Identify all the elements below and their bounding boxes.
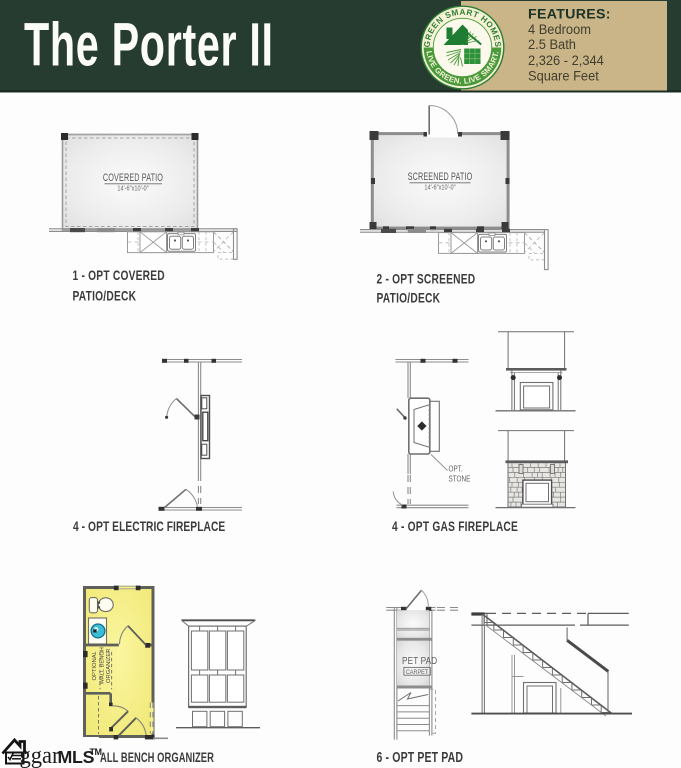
svg-text:4 - OPT ELECTRIC FIREPLACE: 4 - OPT ELECTRIC FIREPLACE xyxy=(73,518,225,534)
svg-text:COVERED PATIO: COVERED PATIO xyxy=(103,172,163,184)
svg-text:TM: TM xyxy=(90,747,102,757)
svg-text:4 - OPT GAS FIREPLACE: 4 - OPT GAS FIREPLACE xyxy=(392,518,518,534)
svg-text:PATIO/DECK: PATIO/DECK xyxy=(377,290,441,306)
svg-text:2 - OPT SCREENED: 2 - OPT SCREENED xyxy=(377,271,476,287)
svg-text:14'-6"x10'-0": 14'-6"x10'-0" xyxy=(117,185,148,193)
svg-text:STONE: STONE xyxy=(449,474,471,484)
svg-text:Square Feet: Square Feet xyxy=(528,68,599,84)
svg-text:SCREENED PATIO: SCREENED PATIO xyxy=(408,171,473,183)
svg-text:The Porter II: The Porter II xyxy=(24,12,274,80)
svg-text:PATIO/DECK: PATIO/DECK xyxy=(73,288,137,304)
svg-text:FEATURES:: FEATURES: xyxy=(528,6,611,22)
svg-text:14'-6"x10'-0": 14'-6"x10'-0" xyxy=(424,184,455,192)
svg-text:2,326 - 2,344: 2,326 - 2,344 xyxy=(528,53,604,69)
svg-text:WALL BENCH: WALL BENCH xyxy=(99,647,105,684)
svg-text:CARPET: CARPET xyxy=(406,668,428,676)
svg-text:ORGANIZER: ORGANIZER xyxy=(106,649,112,683)
svg-text:ggar: ggar xyxy=(20,742,60,768)
svg-text:OPT.: OPT. xyxy=(449,464,463,474)
svg-text:1 - OPT COVERED: 1 - OPT COVERED xyxy=(73,267,165,283)
svg-text:ALL BENCH ORGANIZER: ALL BENCH ORGANIZER xyxy=(100,749,214,766)
svg-text:PET PAD: PET PAD xyxy=(402,654,437,666)
svg-text:4 Bedroom: 4 Bedroom xyxy=(528,22,591,38)
svg-text:2.5 Bath: 2.5 Bath xyxy=(528,37,576,53)
svg-text:OPTIONAL: OPTIONAL xyxy=(92,650,98,680)
svg-text:6 - OPT PET PAD: 6 - OPT PET PAD xyxy=(377,749,464,765)
